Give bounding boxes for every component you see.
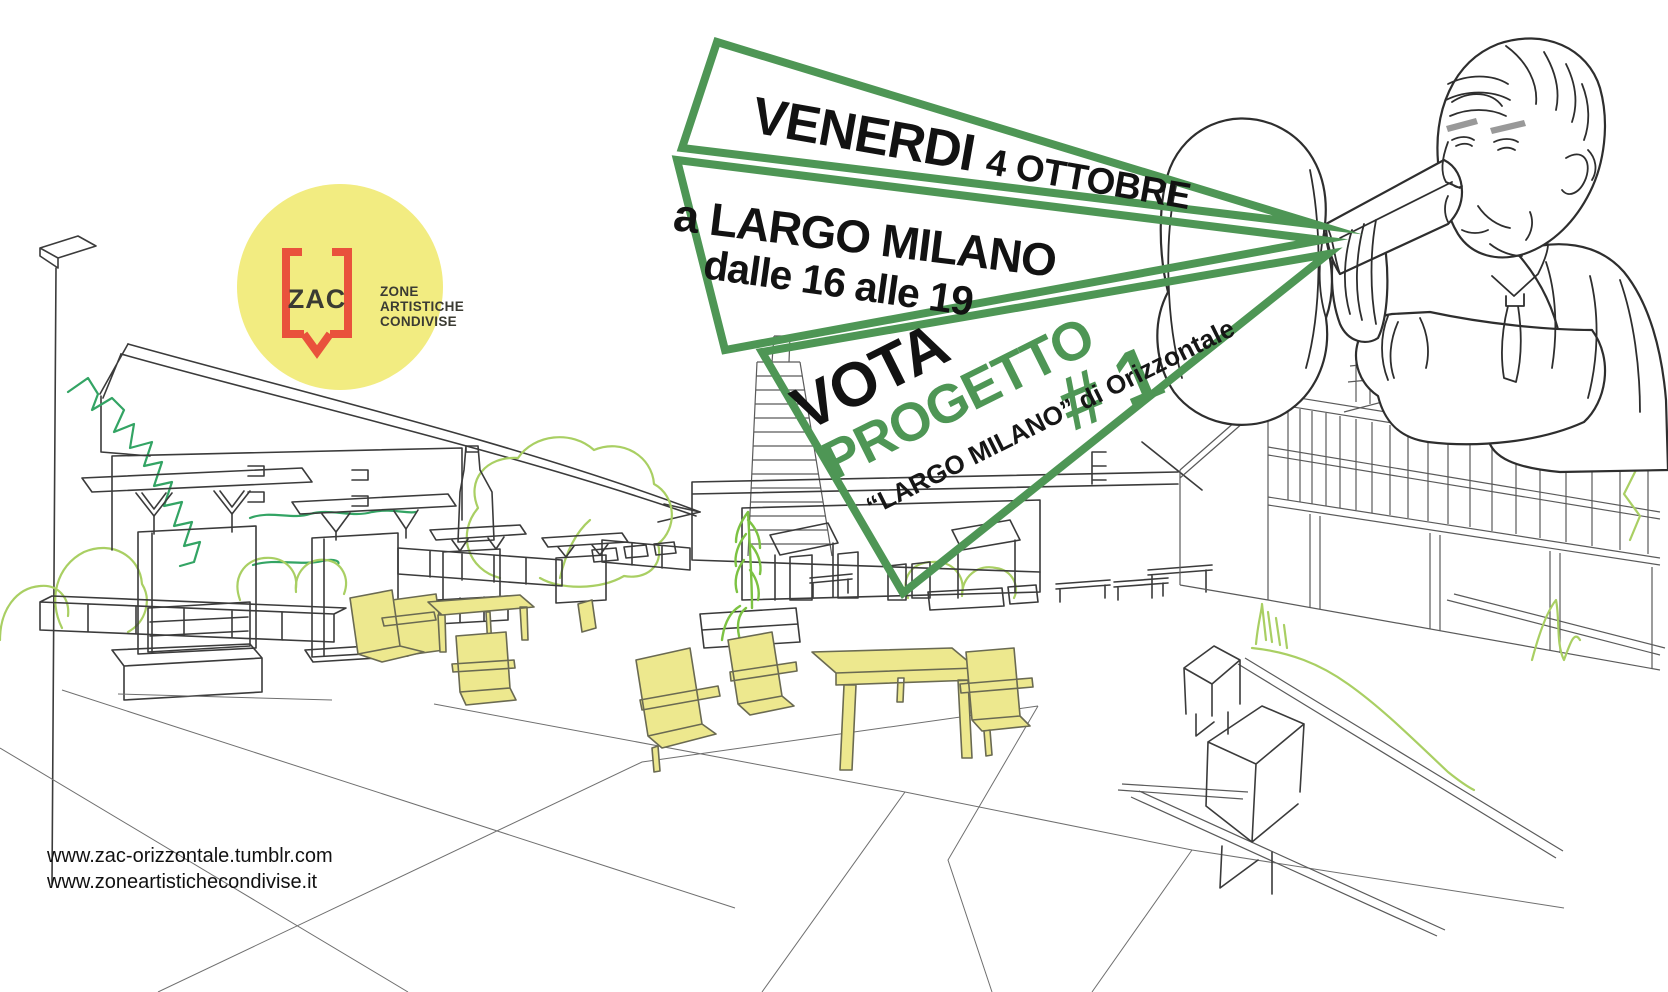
pavement-lines [0,690,1564,992]
planter-edge [1118,594,1665,936]
poster-page: { "banners": { "banner1": { "part1": "VE… [0,0,1668,992]
yellow-table [812,648,976,770]
yellow-chair [452,632,516,705]
banner-1-text: VENERDI4 OTTOBRE [748,87,1196,221]
kiosk-1 [82,468,312,700]
yellow-chair [728,632,797,715]
footer-url-tumblr: www.zac-orizzontale.tumblr.com [47,843,333,869]
yellow-furniture-centre [578,600,1033,772]
yellow-chair [636,648,720,772]
man-head [1437,38,1605,257]
street-lamp [40,236,96,884]
background-wall-left [112,448,462,550]
logo-word-2: ARTISTICHE [380,299,464,314]
logo-word-3: CONDIVISE [380,314,457,329]
zac-logo: ZAC ZONE ARTISTICHE CONDIVISE [237,184,464,390]
footer-urls: www.zac-orizzontale.tumblr.com www.zonea… [47,843,333,895]
logo-acronym: ZAC [288,284,347,314]
tree-outline [68,378,416,566]
yellow-chair [578,600,596,632]
kiosk-4 [542,533,628,603]
footer-url-site: www.zoneartistichecondivise.it [47,869,333,895]
yellow-furniture-left [350,590,534,705]
logo-word-1: ZONE [380,284,419,299]
